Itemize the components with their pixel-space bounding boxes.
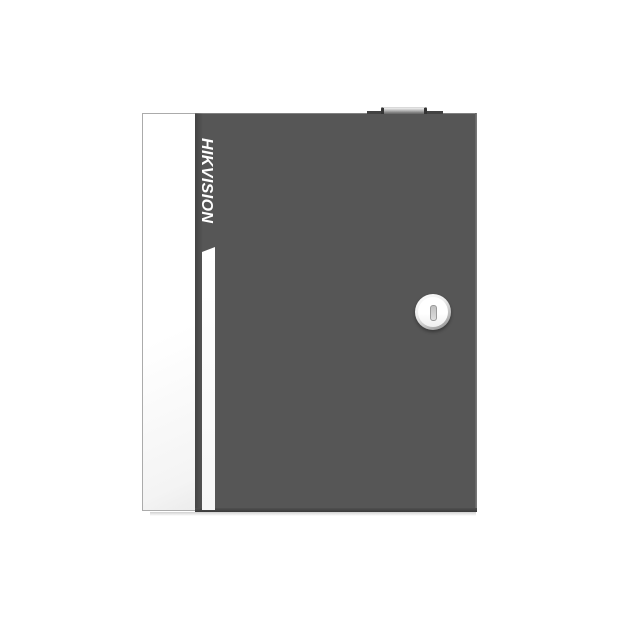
key-lock (415, 294, 451, 330)
door-right-edge (475, 113, 477, 512)
drop-shadow (150, 512, 476, 516)
top-knob (381, 107, 427, 114)
accent-stripe (202, 247, 215, 510)
product-photo: HIKVISION (0, 0, 620, 620)
brand-logo: HIKVISION (196, 138, 216, 236)
keyhole-icon (430, 305, 437, 321)
enclosure-side-panel (142, 113, 195, 511)
lock-face (418, 297, 448, 327)
